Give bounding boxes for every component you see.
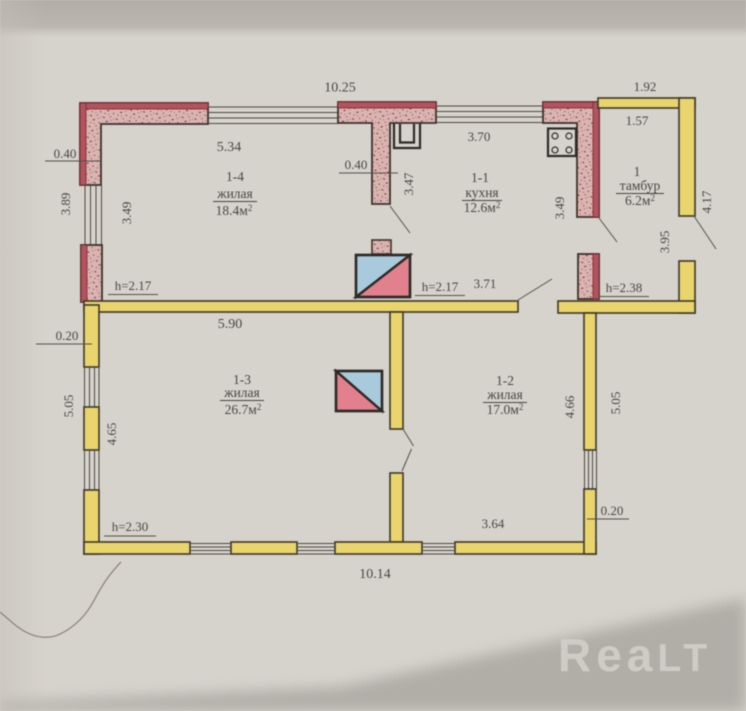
svg-text:тамбур: тамбур [620, 178, 661, 193]
svg-text:5.90: 5.90 [218, 317, 243, 332]
svg-text:17.0м2: 17.0м2 [487, 402, 524, 417]
svg-text:10.25: 10.25 [324, 81, 356, 96]
svg-text:3.49: 3.49 [119, 202, 134, 225]
svg-text:h=2.38: h=2.38 [606, 280, 643, 295]
svg-text:3.89: 3.89 [58, 193, 73, 216]
svg-text:18.4м2: 18.4м2 [216, 203, 253, 218]
svg-text:5.05: 5.05 [61, 395, 76, 418]
svg-text:h=2.17: h=2.17 [422, 279, 459, 294]
svg-text:1-4: 1-4 [226, 169, 244, 184]
svg-text:жилая: жилая [223, 385, 260, 400]
svg-text:3.70: 3.70 [468, 129, 491, 144]
svg-text:4.17: 4.17 [699, 190, 714, 213]
svg-text:3.95: 3.95 [657, 231, 672, 254]
svg-text:12.6м2: 12.6м2 [464, 200, 501, 215]
svg-text:0.20: 0.20 [56, 328, 79, 343]
svg-text:ReaLT: ReaLT [558, 629, 712, 681]
svg-text:3.47: 3.47 [401, 172, 416, 195]
svg-text:3.64: 3.64 [482, 516, 505, 531]
svg-text:26.7м2: 26.7м2 [225, 402, 262, 417]
svg-text:3.71: 3.71 [474, 276, 497, 291]
svg-text:5.34: 5.34 [217, 140, 242, 155]
svg-text:0.20: 0.20 [601, 503, 624, 518]
svg-text:1-2: 1-2 [496, 373, 514, 388]
svg-text:10.14: 10.14 [359, 567, 391, 582]
svg-text:h=2.17: h=2.17 [115, 278, 152, 293]
svg-text:h=2.30: h=2.30 [112, 519, 149, 534]
svg-text:1: 1 [634, 164, 641, 179]
svg-text:1-1: 1-1 [471, 170, 489, 185]
svg-text:жилая: жилая [216, 186, 253, 201]
svg-text:1.92: 1.92 [634, 79, 657, 94]
svg-text:0.40: 0.40 [345, 157, 368, 172]
svg-text:4.65: 4.65 [104, 423, 119, 446]
svg-text:4.66: 4.66 [562, 395, 577, 418]
svg-text:жилая: жилая [486, 387, 523, 402]
svg-text:кухня: кухня [465, 185, 498, 200]
svg-text:3.49: 3.49 [552, 197, 567, 220]
svg-text:1.57: 1.57 [626, 113, 649, 128]
svg-text:5.05: 5.05 [608, 392, 623, 415]
svg-text:0.40: 0.40 [54, 146, 77, 161]
